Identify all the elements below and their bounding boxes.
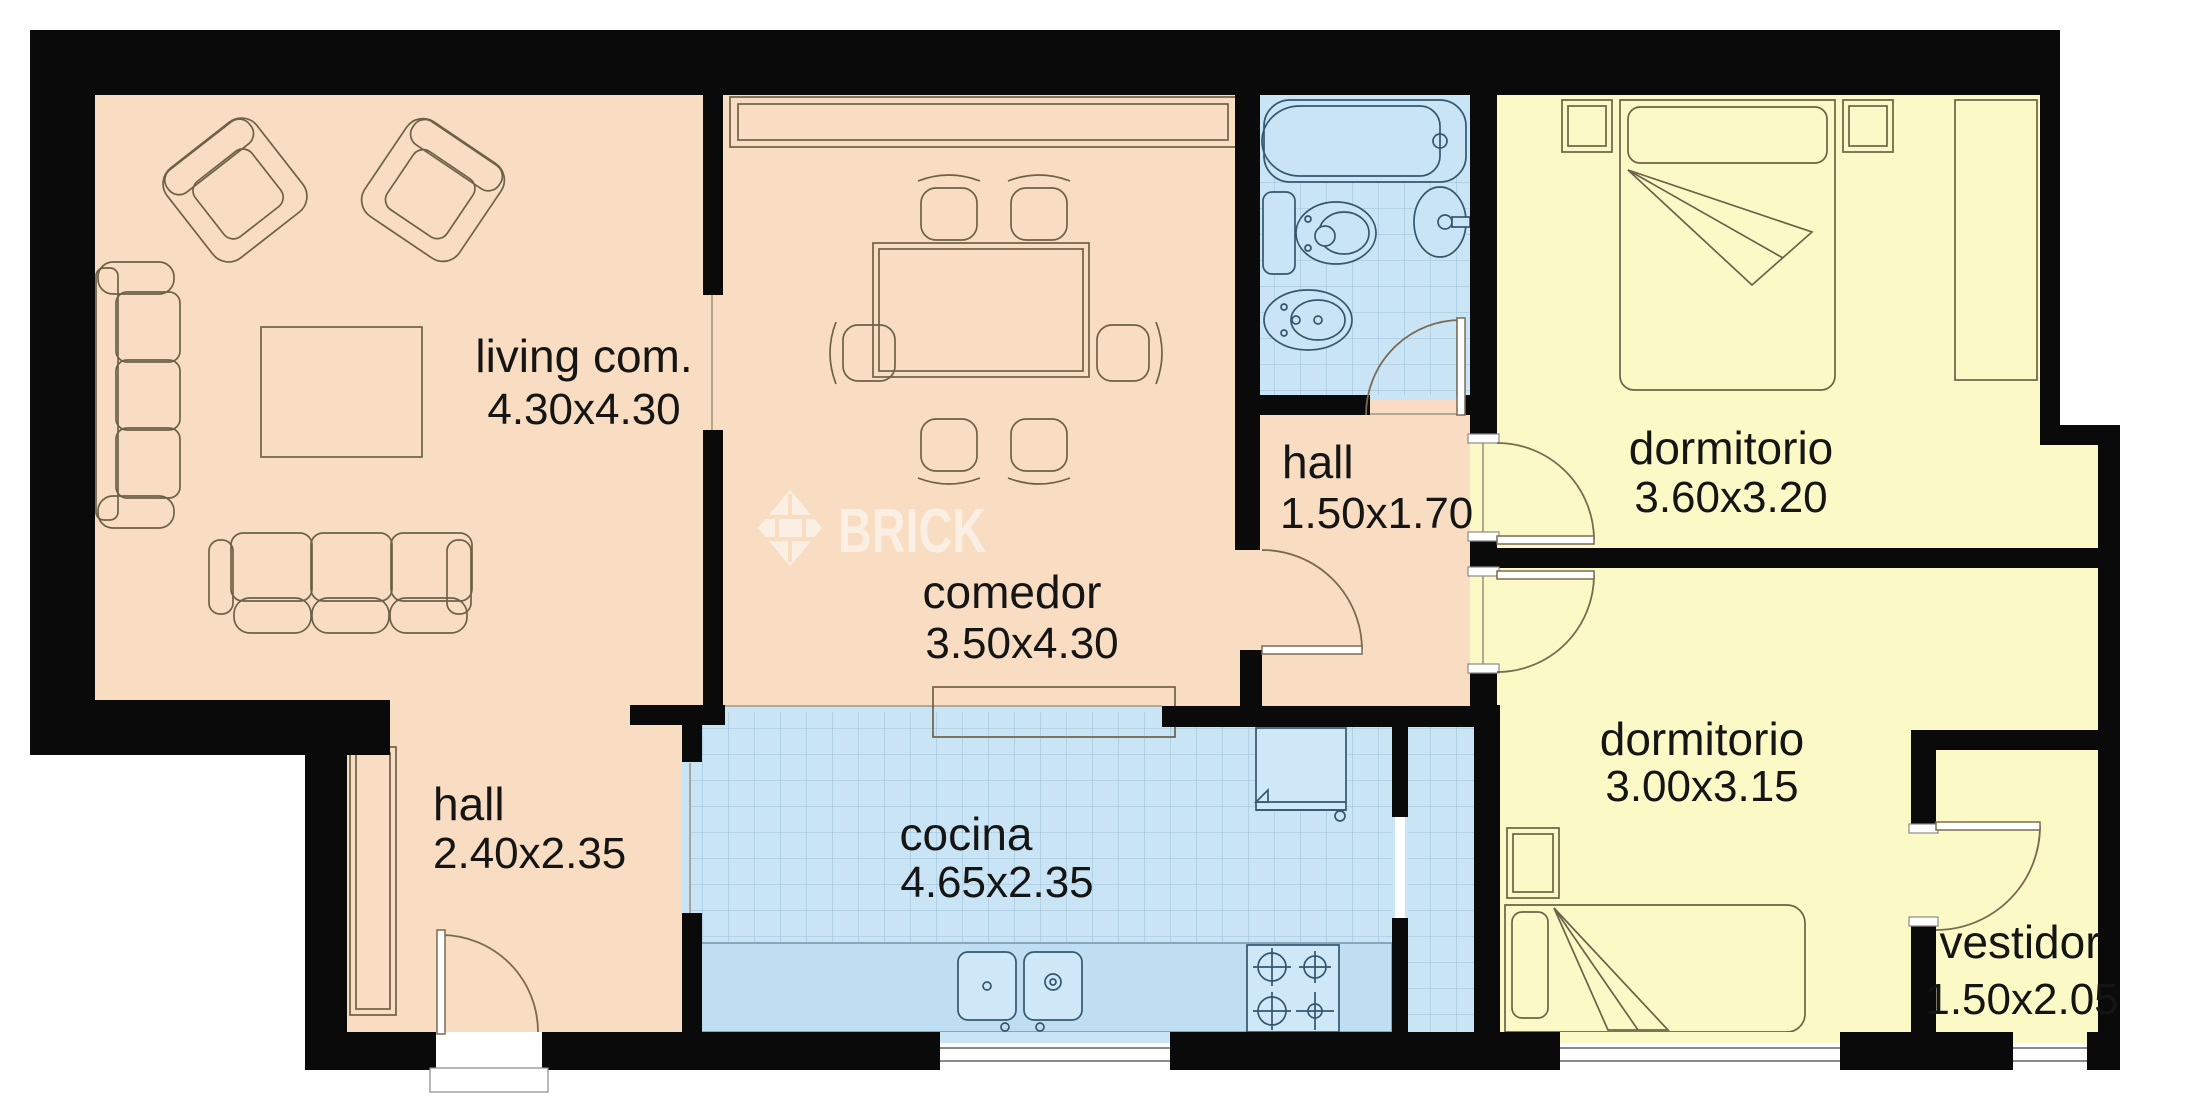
label-living: living com.: [475, 330, 692, 382]
floor-hall-small: [1235, 415, 1474, 707]
label-hall-entry: hall: [433, 778, 505, 830]
stove-icon: [1247, 945, 1339, 1032]
dims-dormitorio-top: 3.60x3.20: [1634, 473, 1827, 522]
label-cocina: cocina: [900, 808, 1033, 860]
dims-dormitorio-low: 3.00x3.15: [1605, 762, 1798, 811]
label-vestidor: vestidor: [1939, 916, 2100, 968]
entry-threshold: [430, 1032, 548, 1092]
label-hall-small: hall: [1282, 436, 1354, 488]
window: [2013, 1032, 2087, 1068]
window: [940, 1032, 1170, 1068]
brick-watermark-text: BRICK: [838, 497, 986, 566]
label-comedor: comedor: [923, 566, 1102, 618]
dims-living: 4.30x4.30: [487, 385, 680, 434]
dims-cocina: 4.65x2.35: [900, 858, 1093, 907]
label-dormitorio-top: dormitorio: [1629, 422, 1834, 474]
dims-hall-entry: 2.40x2.35: [433, 829, 626, 878]
dims-hall-small: 1.50x1.70: [1280, 489, 1473, 538]
bidet-icon: [1264, 290, 1352, 350]
bathtub-icon: [1262, 100, 1466, 182]
strip-tiles: [1408, 712, 1474, 1032]
window: [1560, 1032, 1840, 1068]
label-dormitorio-low: dormitorio: [1600, 713, 1805, 765]
fridge-icon: [1256, 728, 1346, 821]
brick-watermark: BRICK: [758, 490, 986, 566]
dims-comedor: 3.50x4.30: [925, 619, 1118, 668]
floor-plan: BRICK: [0, 0, 2200, 1115]
dims-vestidor: 1.50x2.05: [1925, 975, 2118, 1024]
